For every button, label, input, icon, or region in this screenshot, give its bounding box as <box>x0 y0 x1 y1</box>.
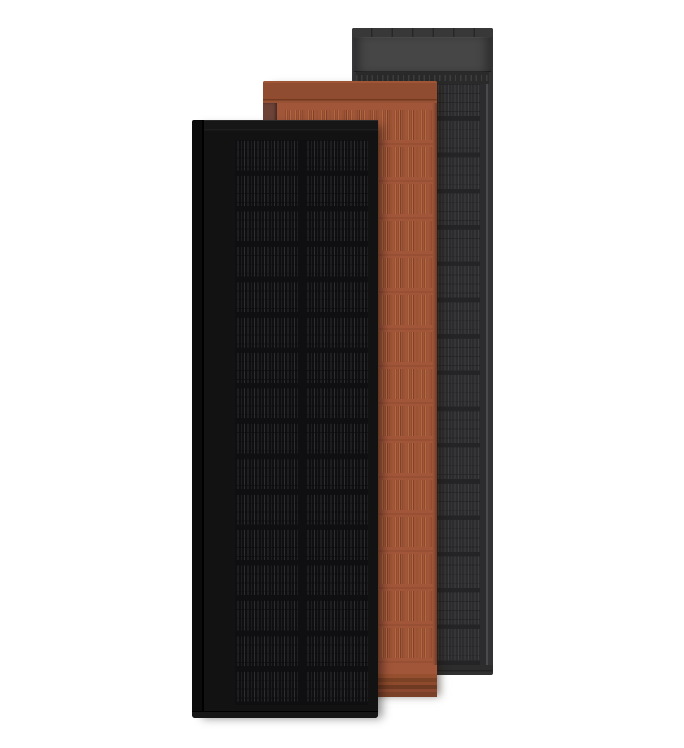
panel-header-flashing <box>354 37 491 72</box>
panel-top-frame <box>204 120 378 140</box>
solar-tile-black <box>192 120 378 718</box>
tile-side-rail <box>202 120 204 718</box>
panel-bottom-frame <box>192 711 378 718</box>
panel-top-frame <box>352 28 493 37</box>
tile-top-band <box>263 81 437 103</box>
solar-cell-grid <box>235 140 368 705</box>
product-stage <box>0 0 684 748</box>
